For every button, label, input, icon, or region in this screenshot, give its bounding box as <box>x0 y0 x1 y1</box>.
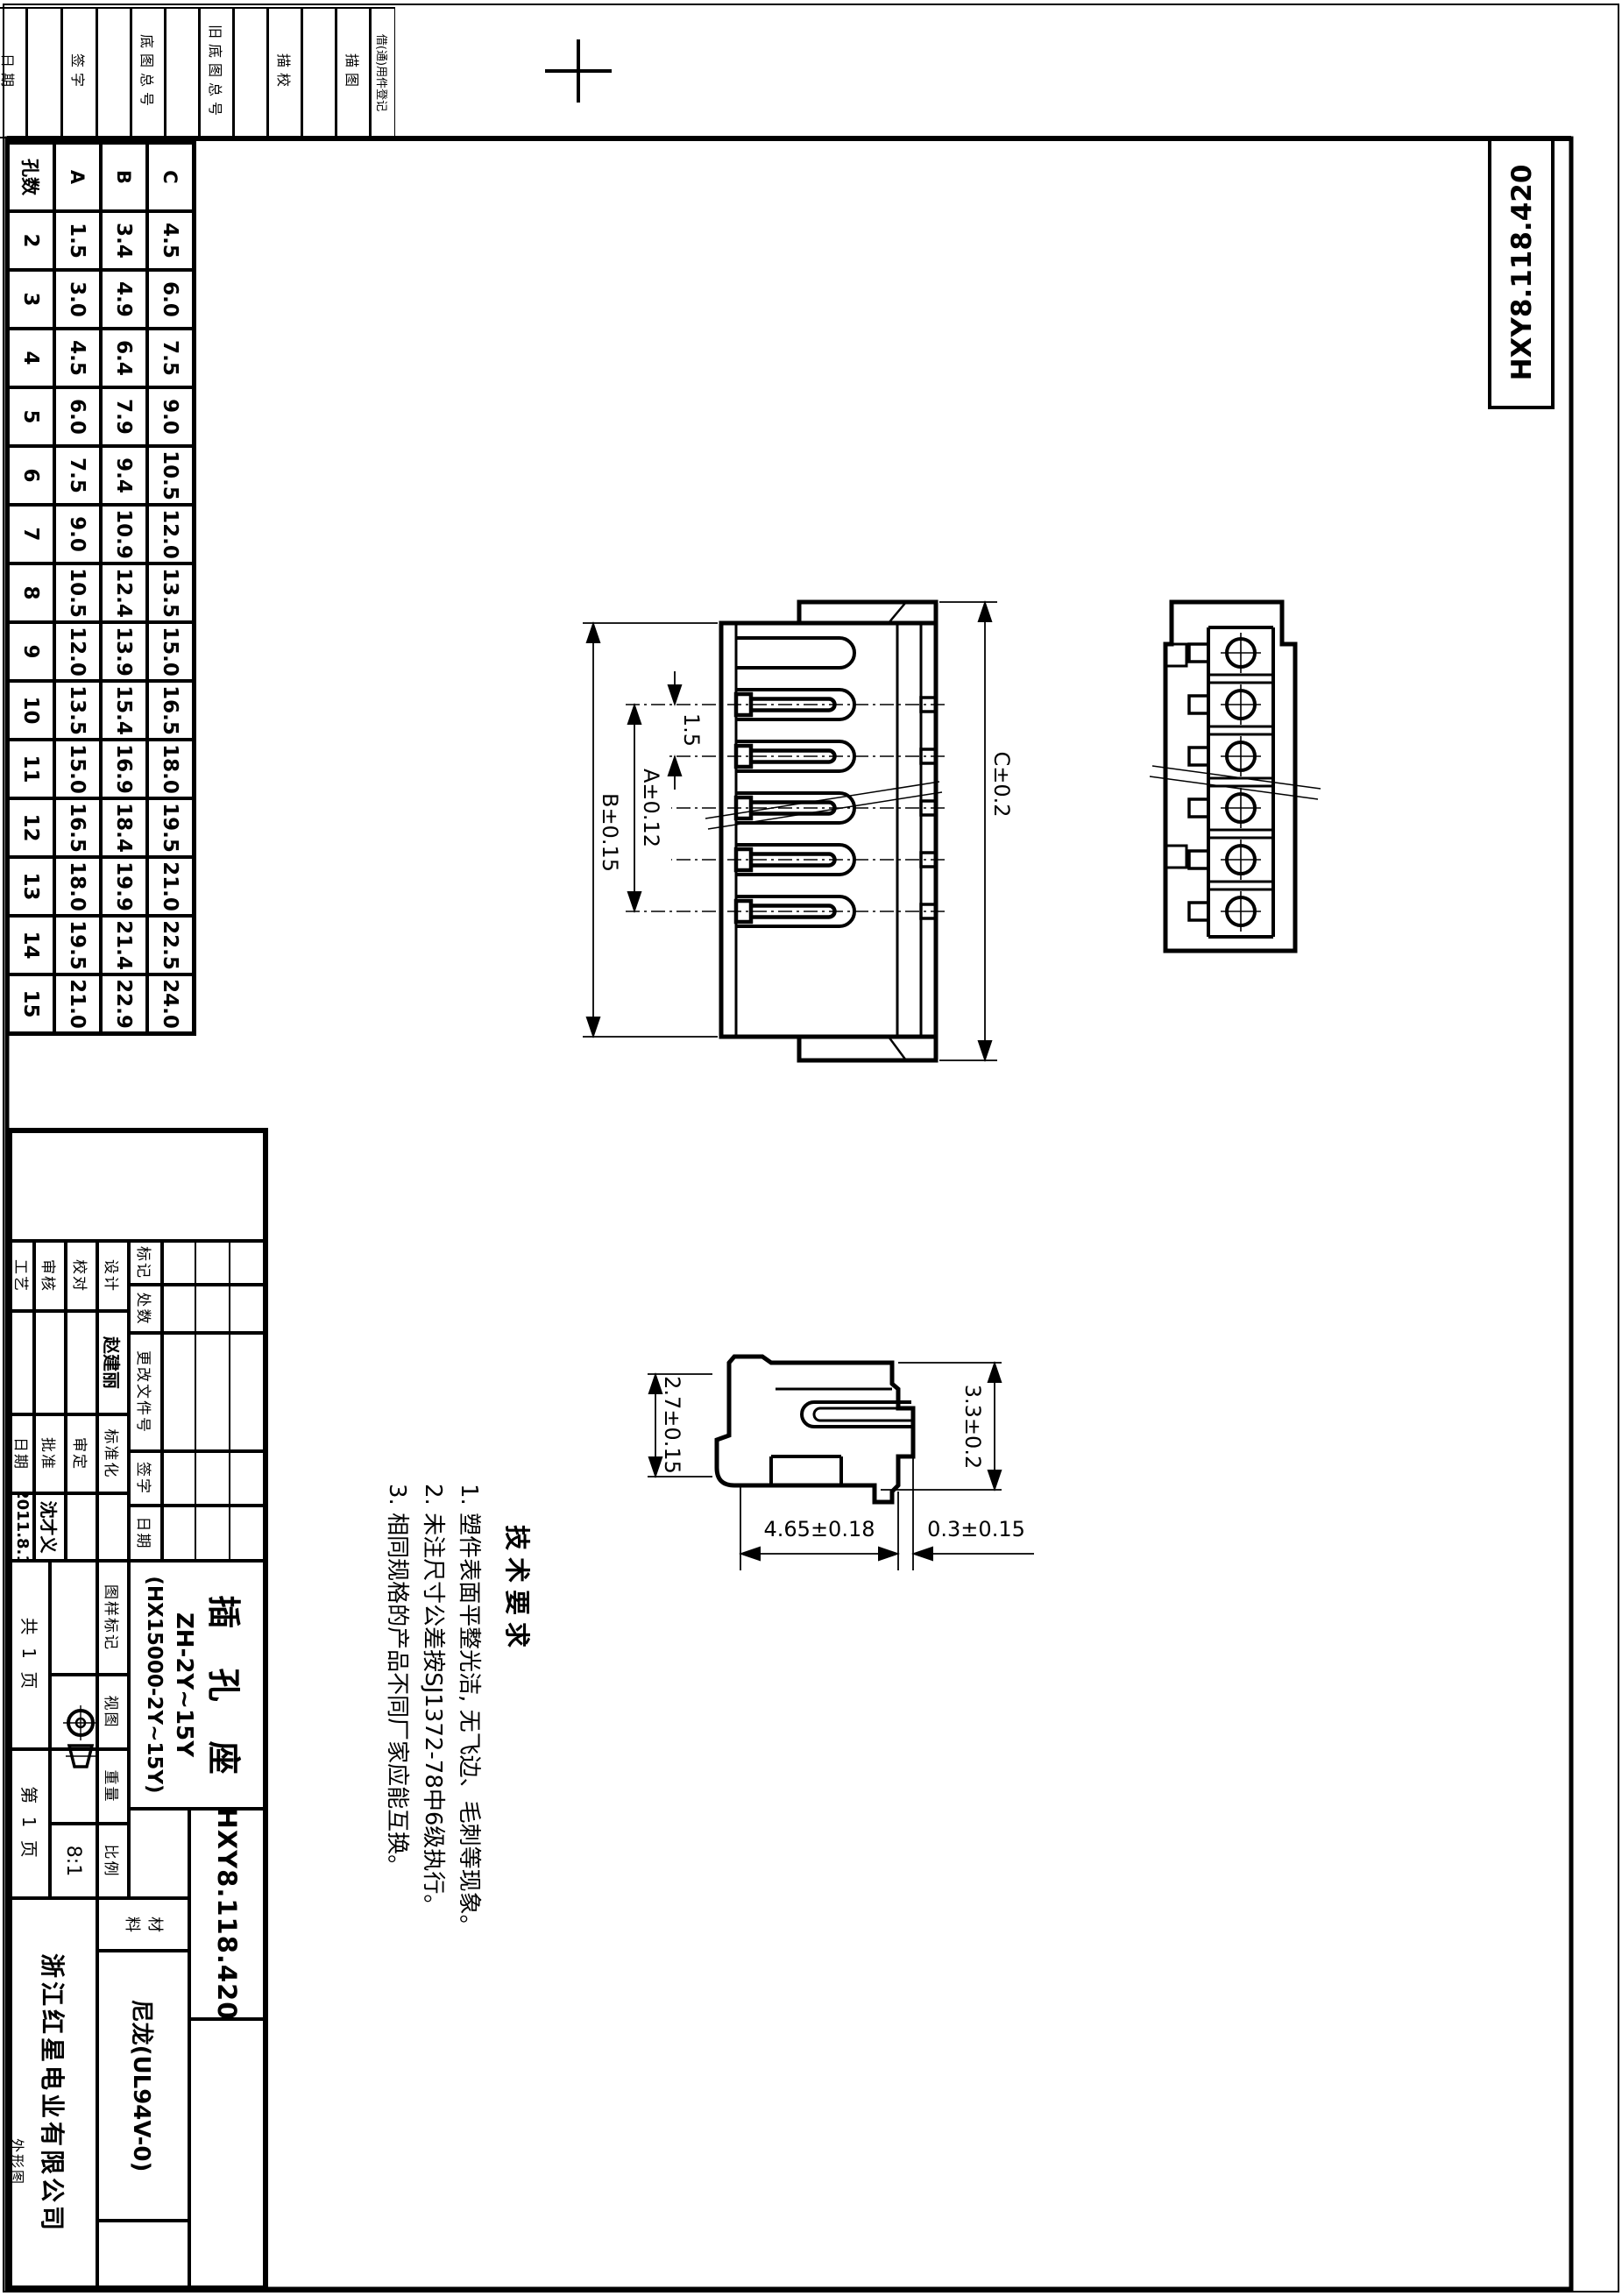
dim-table-cell: 15.0 <box>147 622 194 681</box>
dim-table-cell: 12.4 <box>101 563 147 622</box>
sig-name-design: 赵建丽 <box>97 1311 129 1414</box>
dim-table-cell: 6.4 <box>101 329 147 387</box>
part-model-alt: (HX15000-2Y~15Y) <box>143 1576 166 1793</box>
revision-empty-cell <box>162 1285 265 1333</box>
dim-table-cell: 4 <box>8 329 54 387</box>
revision-header-count: 处数 <box>129 1285 162 1333</box>
title-block-empty-cell <box>11 1131 265 1241</box>
material-label-top: 材 <box>144 1917 166 1932</box>
page-number: 第 1 页 <box>11 1749 50 1898</box>
dim-table-cell: 11 <box>8 740 54 798</box>
part-name: 插 孔 座 <box>202 1581 251 1788</box>
dim-table-cell: 19.9 <box>101 857 147 916</box>
dim-table-cell: 12 <box>8 798 54 857</box>
material-value: 尼龙(UL94V-0) <box>97 1951 189 2221</box>
revision-header-date: 日期 <box>129 1506 162 1561</box>
sig-label-approve: 批准 <box>34 1414 66 1493</box>
revision-row-line <box>229 1241 230 1561</box>
margin-field-empty <box>233 7 267 138</box>
dim-table-cell: 6.0 <box>54 387 101 446</box>
dim-table-cell: 10.9 <box>101 505 147 563</box>
dim-table-cell: 21.0 <box>54 974 101 1033</box>
dim-table-cell: 18.0 <box>54 857 101 916</box>
dim-b: B±0.15 <box>598 793 622 872</box>
title-block-empty-cell <box>97 2221 189 2289</box>
dim-table-cell: 18.4 <box>101 798 147 857</box>
margin-field-signature: 签字 <box>61 7 96 138</box>
dim-a: A±0.12 <box>639 769 663 847</box>
dim-table-cell: 7 <box>8 505 54 563</box>
dim-pitch: 1.5 <box>679 713 704 747</box>
sig-value-examine <box>66 1493 97 1561</box>
sig-name-audit <box>34 1311 66 1414</box>
dim-table-cell: 6 <box>8 446 54 505</box>
centering-mark <box>545 39 612 103</box>
spec-label-drawing-mark: 图样标记 <box>97 1561 129 1675</box>
sig-value-standardization <box>97 1493 129 1561</box>
drawing-page: HXY8.118.420 <box>0 0 1622 2296</box>
margin-field-master-no: 底图总号 <box>131 7 165 138</box>
dim-table-cell: 1.5 <box>54 211 101 270</box>
pages-total: 共 1 页 <box>11 1561 50 1749</box>
title-block: 标记 处数 更改文件号 签字 日期 设计 赵建丽 标准化 校对 审定 审核 批准… <box>7 1128 268 2289</box>
dim-table-cell: 13.9 <box>101 622 147 681</box>
sig-label-check: 校对 <box>66 1241 97 1311</box>
revision-row-line <box>195 1241 196 1561</box>
dim-table-cell: 3 <box>8 270 54 329</box>
dim-table-cell: 9.0 <box>147 387 194 446</box>
dim-h-left: 2.7±0.15 <box>660 1376 684 1474</box>
sig-value-date: 2011.8.1 <box>11 1493 34 1561</box>
margin-field-empty <box>301 7 336 138</box>
dim-table-cell: 9.0 <box>54 505 101 563</box>
dim-table-cell: 8 <box>8 563 54 622</box>
dim-table-cell: 2 <box>8 211 54 270</box>
dim-table-cell: 3.0 <box>54 270 101 329</box>
dim-table-cell: 7.5 <box>54 446 101 505</box>
dim-table-cell: 16.9 <box>101 740 147 798</box>
dim-table-cell: 4.9 <box>101 270 147 329</box>
dim-table-cell: 19.5 <box>54 916 101 974</box>
dim-table-header: B <box>101 143 147 211</box>
dim-table-cell: 6.0 <box>147 270 194 329</box>
sheet-note: 外形图 <box>8 2138 29 2186</box>
spec-value-scale: 8:1 <box>50 1824 97 1898</box>
dim-table-cell: 15.0 <box>54 740 101 798</box>
dim-height: 4.65±0.18 <box>764 1517 875 1541</box>
revision-header-docno: 更改文件号 <box>129 1333 162 1451</box>
dim-table-cell: 7.5 <box>147 329 194 387</box>
dim-table-header: A <box>54 143 101 211</box>
dim-table-cell: 7.9 <box>101 387 147 446</box>
dim-h-right: 3.3±0.2 <box>960 1385 985 1469</box>
sig-label-process: 工艺 <box>11 1241 34 1311</box>
margin-field-trace-check: 描校 <box>267 7 301 138</box>
dim-c: C±0.2 <box>989 751 1014 817</box>
spec-value-view <box>50 1675 97 1749</box>
dim-table-cell: 22.5 <box>147 916 194 974</box>
margin-field-borrow-record: 借(通)用件登记 <box>370 7 395 138</box>
dim-table-cell: 22.9 <box>101 974 147 1033</box>
dim-table-cell: 19.5 <box>147 798 194 857</box>
dim-table-cell: 15.4 <box>101 681 147 740</box>
margin-field-old-master-no: 旧底图总号 <box>199 7 233 138</box>
revision-header-sign: 签字 <box>129 1451 162 1506</box>
sig-name-process <box>11 1311 34 1414</box>
sig-label-examine: 审定 <box>66 1414 97 1493</box>
stamp-box: HXY8.118.420 <box>1490 138 1553 407</box>
dim-table-cell: 13 <box>8 857 54 916</box>
dim-table-cell: 12.0 <box>147 505 194 563</box>
dim-table-cell: 21.0 <box>147 857 194 916</box>
tech-requirements-title: 技术要求 <box>500 1525 537 1655</box>
dim-table-cell: 16.5 <box>54 798 101 857</box>
dim-table-cell: 18.0 <box>147 740 194 798</box>
part-name-box: 插 孔 座 ZH-2Y~15Y (HX15000-2Y~15Y) <box>129 1561 265 1809</box>
dim-table-cell: 9 <box>8 622 54 681</box>
dim-table-header: 孔数 <box>8 143 54 211</box>
dim-table-cell: 10 <box>8 681 54 740</box>
spec-label-scale: 比例 <box>97 1824 129 1898</box>
revision-empty-cell <box>162 1241 265 1285</box>
sig-label-standardization: 标准化 <box>97 1414 129 1493</box>
dimension-table: C4.56.07.59.010.512.013.515.016.518.019.… <box>5 140 196 1036</box>
sig-name-approve: 沈才义 <box>34 1493 66 1561</box>
top-view <box>1150 602 1321 951</box>
dim-table-cell: 12.0 <box>54 622 101 681</box>
title-block-empty-cell <box>189 2019 265 2289</box>
dim-table-header: C <box>147 143 194 211</box>
spec-label-weight: 重量 <box>97 1749 129 1824</box>
dim-table-cell: 3.4 <box>101 211 147 270</box>
company-name: 浙江红星电业有限公司 <box>11 1898 97 2289</box>
sig-name-check <box>66 1311 97 1414</box>
revision-header-mark: 标记 <box>129 1241 162 1285</box>
dim-table-cell: 14 <box>8 916 54 974</box>
material-label-bottom: 料 <box>121 1917 143 1932</box>
title-block-empty-cell <box>129 1809 189 1898</box>
sig-label-audit: 审核 <box>34 1241 66 1311</box>
side-view <box>717 1357 913 1502</box>
tech-requirement-1: 1. 塑件表面平整光洁, 无飞边、毛刺等现象。 <box>455 1484 487 1938</box>
sig-label-design: 设计 <box>97 1241 129 1311</box>
dim-table-cell: 10.5 <box>147 446 194 505</box>
margin-field-empty <box>96 7 131 138</box>
sig-label-date: 日期 <box>11 1414 34 1493</box>
revision-empty-cell <box>162 1451 265 1506</box>
material-label: 材 料 <box>97 1898 189 1951</box>
dim-table-cell: 4.5 <box>147 211 194 270</box>
dim-table-cell: 16.5 <box>147 681 194 740</box>
margin-field-tracing: 描图 <box>336 7 370 138</box>
tech-requirement-3: 3. 相同规格的产品不同厂家应能互换。 <box>383 1484 415 1877</box>
dim-table-cell: 15 <box>8 974 54 1033</box>
spec-value-weight <box>50 1749 97 1824</box>
spec-label-view: 视图 <box>97 1675 129 1749</box>
dim-standoff: 0.3±0.15 <box>927 1517 1025 1541</box>
margin-field-empty <box>26 7 61 138</box>
front-view <box>623 602 945 1060</box>
revision-empty-cell <box>162 1506 265 1561</box>
margin-fields: 借(通)用件登记 描图 描校 旧底图总号 底图总号 签字 日期 <box>7 7 395 138</box>
tech-requirement-2: 2. 未注尺寸公差按SJ1372-78中6级执行。 <box>419 1484 451 1917</box>
dim-table-cell: 4.5 <box>54 329 101 387</box>
tech-requirements-title-text: 技术要求 <box>502 1525 532 1655</box>
dim-table-cell: 21.4 <box>101 916 147 974</box>
dim-table-cell: 10.5 <box>54 563 101 622</box>
dim-table-cell: 9.4 <box>101 446 147 505</box>
drawing-number-box: HXY8.118.420 <box>189 1809 265 2019</box>
revision-empty-cell <box>162 1333 265 1451</box>
stamp-drawing-number: HXY8.118.420 <box>1506 165 1538 381</box>
dim-table-cell: 24.0 <box>147 974 194 1033</box>
dim-table-cell: 13.5 <box>147 563 194 622</box>
drawing-sheet: HXY8.118.420 <box>0 0 1622 2296</box>
spec-value-drawing-mark <box>50 1561 97 1675</box>
dim-table-cell: 13.5 <box>54 681 101 740</box>
dim-table-cell: 5 <box>8 387 54 446</box>
margin-field-empty <box>165 7 199 138</box>
part-model: ZH-2Y~15Y <box>171 1612 197 1757</box>
margin-field-date: 日期 <box>0 7 26 138</box>
